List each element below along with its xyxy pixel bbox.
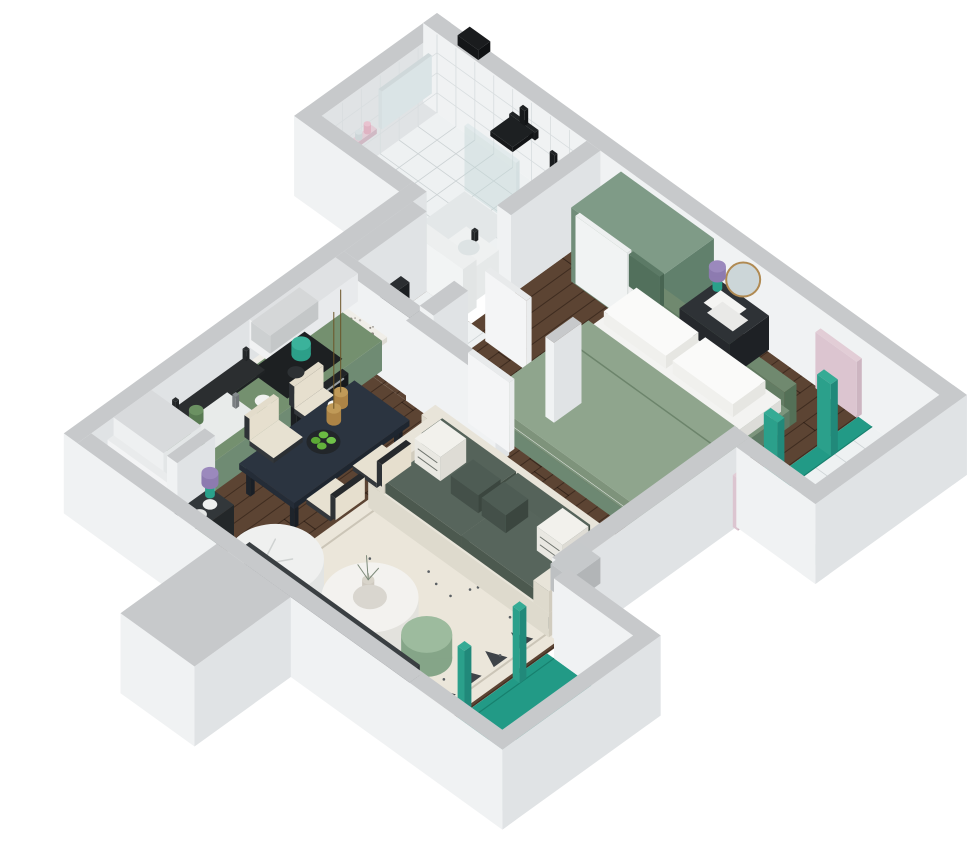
vanity-sink <box>458 240 480 256</box>
coffee-table-tray <box>353 585 387 610</box>
floor-plan-stage: 3D isometric floor plan rendering of a s… <box>0 0 969 846</box>
bathroom-bottle-1 <box>364 121 371 134</box>
apple-4 <box>311 437 321 444</box>
sink-faucet <box>232 392 239 409</box>
shelf-support-1 <box>243 346 250 361</box>
cooking-pot <box>291 336 310 361</box>
apple-2 <box>317 442 327 449</box>
teal-glazing-living-1 <box>513 601 527 683</box>
apple-3 <box>326 437 336 444</box>
apartment-3d-floorplan <box>0 0 969 846</box>
round-wall-mirror <box>726 263 760 297</box>
shower-arm <box>520 105 529 126</box>
bathroom-bottle-2 <box>355 129 362 140</box>
dresser-flowers <box>709 260 726 282</box>
teal-glazing-bedroom-1 <box>817 369 838 456</box>
burner-2 <box>287 366 304 378</box>
console-plate-1 <box>203 499 218 510</box>
console-flowers <box>201 467 218 489</box>
apple-1 <box>319 431 329 438</box>
